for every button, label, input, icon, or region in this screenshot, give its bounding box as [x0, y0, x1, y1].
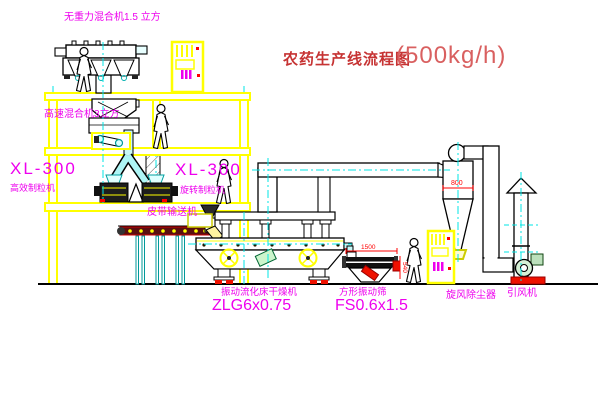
- no-gravity-mixer: [55, 41, 147, 93]
- label-mid-unit-model: XL-300: [175, 161, 242, 178]
- sieve-height-dimension: 540: [401, 262, 408, 273]
- flow-diagram-canvas: 800 1500 540: [0, 0, 600, 403]
- label-belt-conveyor: 皮带输送机: [147, 208, 197, 218]
- label-cyclone: 旋风除尘器: [446, 291, 496, 301]
- label-fan: 引风机: [507, 289, 537, 299]
- sieve-length-dimension: 1500: [361, 244, 376, 251]
- cyclone-dimension: 800: [451, 180, 463, 187]
- granulator-left: [94, 175, 128, 202]
- dryer-foot-left: [214, 269, 234, 284]
- label-left-unit-name: 高效制粒机: [10, 184, 55, 193]
- person-ground: [407, 239, 422, 283]
- control-cabinet-top: [172, 42, 203, 92]
- control-cabinet-ground: [428, 231, 454, 283]
- granulator-stand: [129, 184, 143, 202]
- diagram-capacity: (500kg/h): [396, 44, 506, 68]
- dryer-foot-right: [309, 269, 329, 284]
- fluid-bed-dryer: [196, 212, 353, 284]
- label-mid-unit-name: 旋转制粒机: [180, 186, 225, 195]
- label-left-unit-model: XL-300: [10, 160, 77, 177]
- label-no-gravity-mixer: 无重力混合机1.5 立方: [64, 13, 161, 23]
- label-high-speed-mixer: 高速混合机3立方: [44, 110, 120, 120]
- high-speed-mixer: [89, 99, 139, 158]
- label-sieve-model: FS0.6x1.5: [335, 298, 408, 314]
- diagram-title: 农药生产线流程图: [283, 52, 411, 67]
- label-dryer-model: ZLG6x0.75: [212, 298, 291, 314]
